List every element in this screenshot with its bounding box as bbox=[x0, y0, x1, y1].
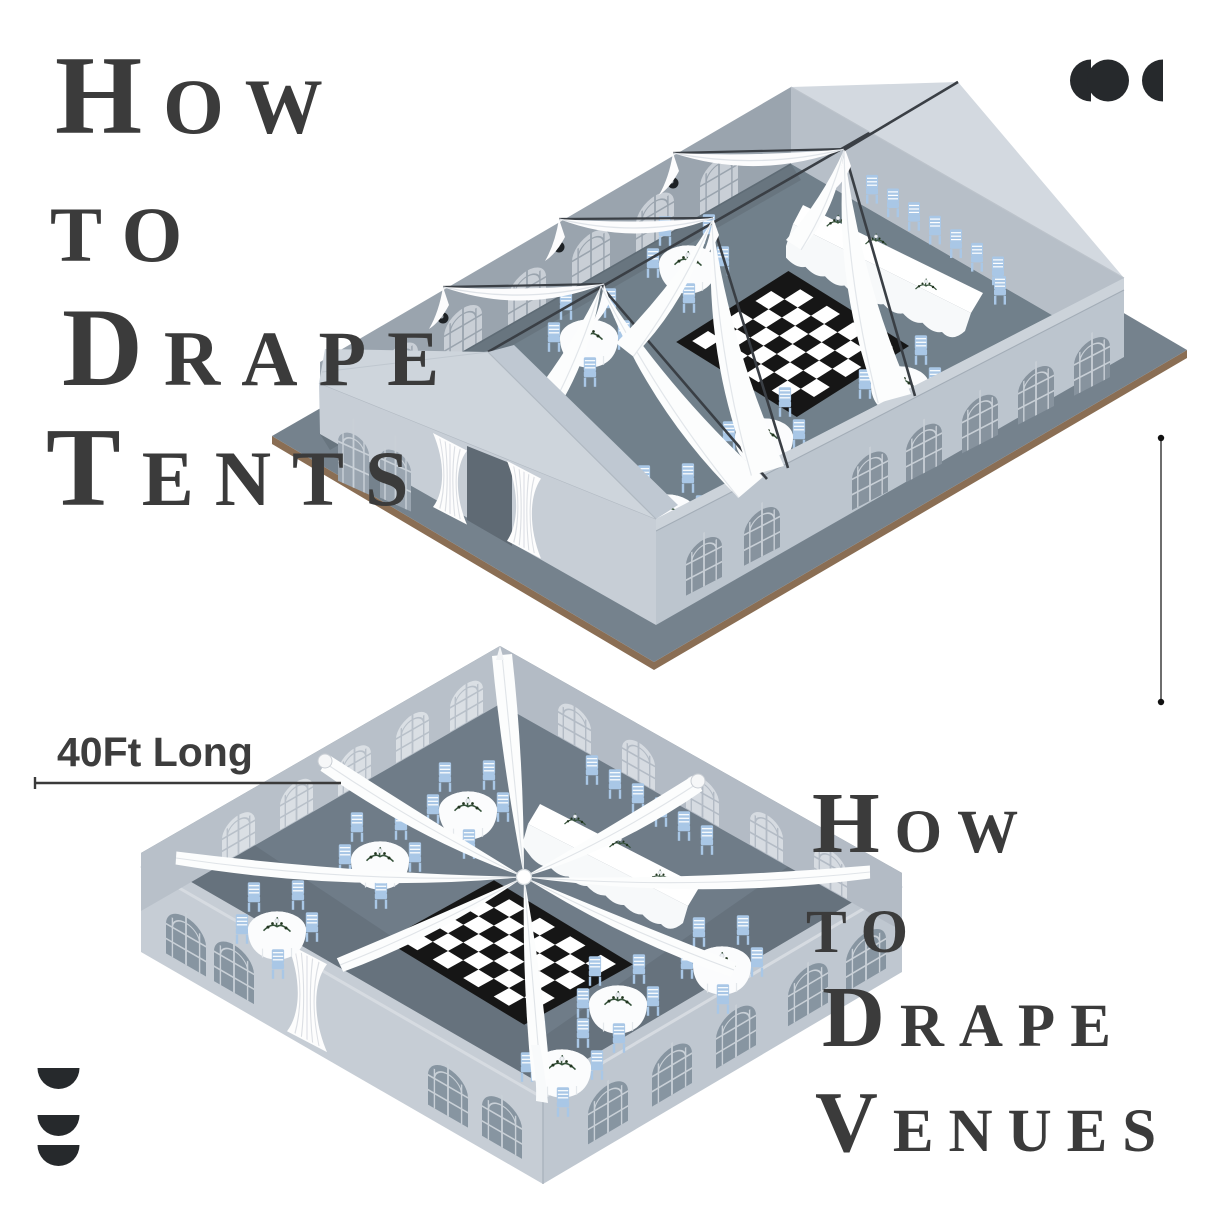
svg-text:40Ft Long: 40Ft Long bbox=[57, 729, 253, 775]
svg-text:Drape: Drape bbox=[822, 968, 1126, 1065]
svg-text:Tents: Tents bbox=[46, 406, 429, 530]
svg-text:Drape: Drape bbox=[62, 286, 460, 410]
svg-text:How: How bbox=[55, 34, 344, 158]
svg-text:to: to bbox=[50, 162, 203, 286]
svg-text:How: How bbox=[812, 774, 1033, 871]
svg-text:to: to bbox=[806, 874, 923, 971]
svg-text:Venues: Venues bbox=[815, 1073, 1171, 1170]
